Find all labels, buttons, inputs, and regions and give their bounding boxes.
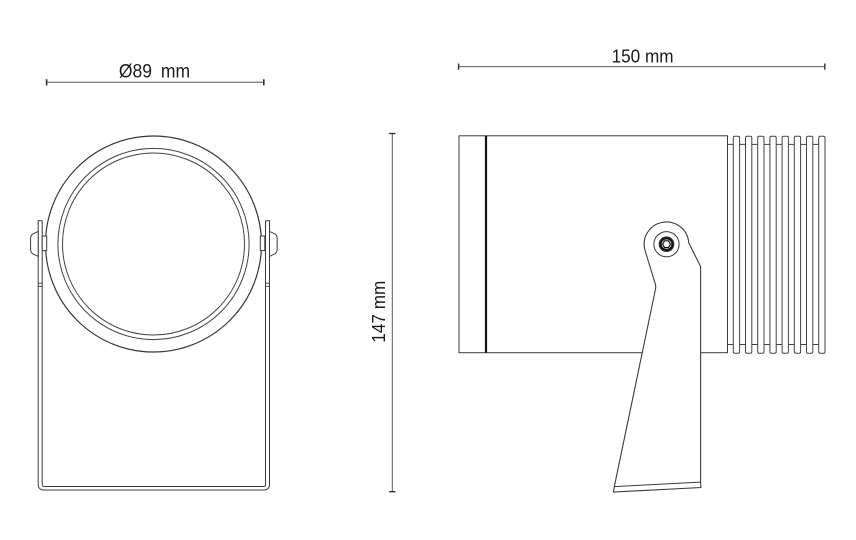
svg-text:Ø89 mm: Ø89 mm (119, 60, 190, 82)
svg-text:150 mm: 150 mm (612, 46, 674, 67)
svg-text:147 mm: 147 mm (368, 281, 389, 343)
